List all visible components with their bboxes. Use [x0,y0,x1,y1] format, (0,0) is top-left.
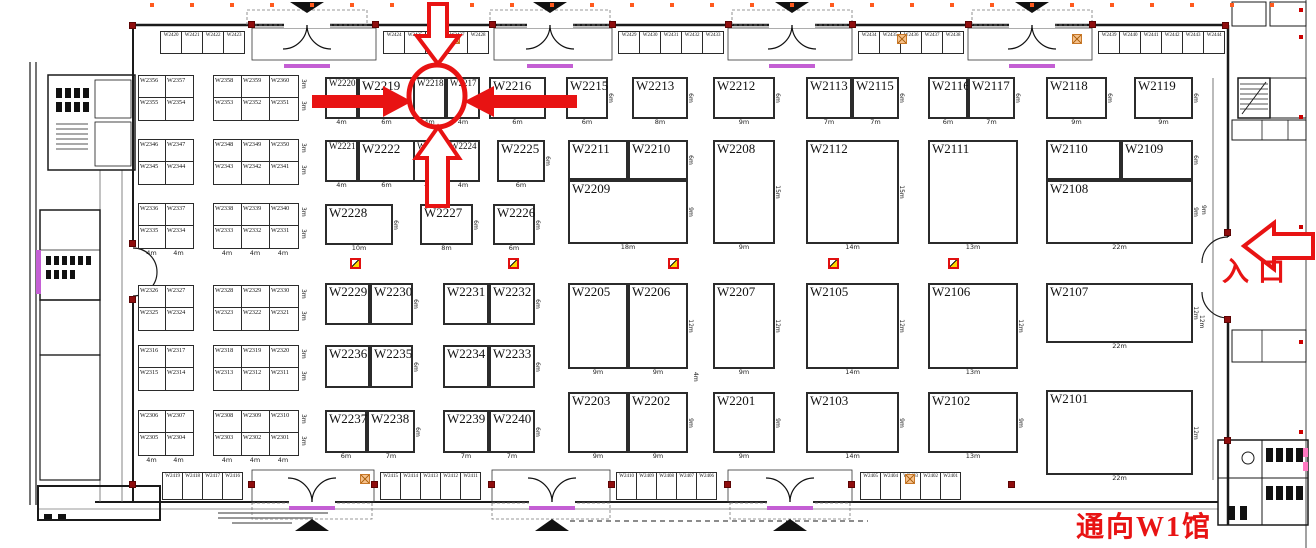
booth-id: W2347 [166,140,193,148]
booth-W2322: W2322 [241,307,271,331]
column-dot-marker [1299,225,1303,229]
booth-id: W2237 [329,412,367,426]
booth-id: W2335 [139,226,166,234]
booth-depth-label: 6m [1192,155,1199,165]
utility-box-marker [450,34,460,44]
booth-id: W2313 [214,368,242,376]
booth-id: W2324 [166,308,193,316]
booth-depth-label: 6m [534,362,541,372]
booth-depth-label: 6m [534,299,541,309]
booth-id: W2319 [242,346,270,354]
booth-id: W2419 [163,473,182,479]
booth-depth-label: 6m [607,93,614,103]
utility-box-marker [905,474,915,484]
booth-id: W2307 [166,411,193,419]
booth-id: W2311 [270,368,298,376]
perimeter-booth-W2412: W2412 [440,472,461,500]
booth-W2316: W2316 [138,345,167,369]
booth-id: W2236 [329,347,367,361]
booth-id: W2327 [166,286,193,294]
booth-width-label: 9m [715,243,773,251]
booth-W2203: W22039m [568,392,628,453]
sprinkler-dot-marker [1230,3,1234,7]
perimeter-booth-W2411: W2411 [460,472,481,500]
booth-W2318: W2318 [213,345,243,369]
booth-width-label: 7m [369,452,413,460]
booth-width-label: 13m [930,243,1016,251]
booth-W2315: W2315 [138,367,167,391]
booth-id: W2339 [242,204,270,212]
sprinkler-dot-marker [230,3,234,7]
perimeter-booth-W2401: W2401 [940,472,961,500]
perimeter-booth-W2409: W2409 [636,472,657,500]
booth-depth-label: 6m [412,299,419,309]
column-dot-marker [1299,430,1303,434]
booth-depth-label: 12m [774,319,781,332]
booth-id: W2107 [1050,285,1088,299]
booth-W2324: W2324 [165,307,194,331]
booth-width-label: 9m [1048,118,1105,126]
booth-width-label: 14m [808,368,897,376]
booth-W2108: W210822m9m [1046,180,1193,244]
perimeter-booth-W2418: W2418 [182,472,203,500]
booth-W2345: W2345 [138,161,167,185]
sprinkler-dot-marker [750,3,754,7]
booth-width-label: 13m [930,368,1016,376]
sprinkler-dot-marker [510,3,514,7]
booth-id: W2317 [166,346,193,354]
booth-id: W2417 [203,473,222,479]
column-dot-marker [1299,35,1303,39]
booth-id: W2102 [932,394,970,408]
booth-W2347: W2347 [165,139,194,163]
booth-width-label: 4m [138,456,165,464]
booth-depth-label: 9m [898,418,905,428]
booth-width-label: 4m [327,118,356,126]
booth-id: W2109 [1125,142,1163,156]
booth-W2208: W22089m15m [713,140,775,244]
booth-id: W2333 [214,226,242,234]
booth-id: W2203 [572,394,610,408]
booth-id: W2208 [717,142,755,156]
booth-id: W2329 [242,286,270,294]
booth-id: W2343 [214,162,242,170]
perimeter-booth-W2431: W2431 [660,31,682,54]
booth-id: W2441 [1141,32,1161,38]
booth-id: W2353 [214,98,242,106]
wall-post-marker [1224,229,1231,236]
booth-id: W2424 [384,32,404,38]
utility-box-marker [360,474,370,484]
booth-id: W2217 [450,79,477,89]
booth-id: W2303 [214,433,242,441]
perimeter-booth-W2423: W2423 [223,31,245,54]
sprinkler-dot-marker [1110,3,1114,7]
sprinkler-dot-marker [1030,3,1034,7]
booth-id: W2316 [139,346,166,354]
booth-id: W2308 [214,411,242,419]
booth-W2222: W22226m6m [358,140,415,182]
perimeter-booth-W2433: W2433 [702,31,724,54]
booth-W2209: W220918m9m [568,180,688,244]
booth-width-label: 4m [448,181,478,189]
booth-id: W2232 [493,285,531,299]
booth-id: W2222 [362,142,400,156]
booth-id: W2314 [166,368,193,376]
booth-id: W2321 [270,308,298,316]
perimeter-booth-W2428: W2428 [467,31,489,54]
sprinkler-dot-marker [830,3,834,7]
booth-id: W2213 [636,79,674,93]
booth-depth-label: 9m [1192,207,1199,217]
booth-id: W2433 [703,32,723,38]
booth-id: W2301 [270,433,298,441]
booth-id: W2228 [329,206,367,220]
booth-W2238: W22387m6m [367,410,415,453]
booth-id: W2116 [932,79,970,93]
booth-width-label: 6m [491,118,544,126]
booth-depth-label: 6m [774,93,781,103]
perimeter-booth-W2415: W2415 [380,472,401,500]
booth-id: W2302 [242,433,270,441]
booth-id: W2410 [617,473,636,479]
wall-post-marker [129,240,136,247]
booth-id: W2432 [682,32,702,38]
booth-id: W2323 [214,308,242,316]
booth-id: W2210 [632,142,670,156]
booth-W2320: W2320 [269,345,299,369]
booth-id: W2306 [139,411,166,419]
sprinkler-dot-marker [190,3,194,7]
sprinkler-dot-marker [150,3,154,7]
booth-W2239: W22397m [443,410,489,453]
booth-id: W2405 [861,473,880,479]
sprinkler-dot-marker [950,3,954,7]
booth-W2216: W22166m [489,77,546,119]
booth-id: W2119 [1138,79,1176,93]
sprinkler-dot-marker [1070,3,1074,7]
booth-width-label: 9m [570,368,626,376]
exhibition-hall-floorplan: W22204mW22196m6mW22184mW22174mW22166mW22… [0,0,1316,548]
booth-id: W2215 [570,79,608,93]
booth-W2119: W21199m6m [1134,77,1193,119]
booth-width-label: 7m [491,452,533,460]
booth-W2230: W22306m [370,283,413,325]
booth-id: W2341 [270,162,298,170]
booth-W2312: W2312 [241,367,271,391]
booth-id: W2357 [166,76,193,84]
wall-post-marker [849,21,856,28]
booth-width-label: 7m [808,118,850,126]
booth-width-label: 4m [165,456,192,464]
perimeter-booth-W2408: W2408 [656,472,677,500]
booth-depth-label: 6m [544,156,551,166]
booth-W2105: W210514m12m [806,283,899,369]
booth-width-label: 9m [1136,118,1191,126]
wall-post-marker [725,21,732,28]
booth-W2307: W2307 [165,410,194,434]
booth-width-label: 9m [715,368,773,376]
booth-W2201: W22019m9m [713,392,775,453]
perimeter-booth-W2405: W2405 [860,472,881,500]
perimeter-booth-W2421: W2421 [181,31,203,54]
perimeter-booth-W2407: W2407 [676,472,697,500]
booth-layer: W22204mW22196m6mW22184mW22174mW22166mW22… [0,0,1316,548]
booth-W2358: W2358 [213,75,243,99]
perimeter-booth-W2406: W2406 [696,472,717,500]
dimension-label: 12m [1198,315,1205,328]
booth-W2240: W22407m6m [489,410,535,453]
booth-W2357: W2357 [165,75,194,99]
booth-width-label: 6m [360,181,413,189]
booth-W2348: W2348 [213,139,243,163]
booth-W2302: W2302 [241,432,271,456]
booth-id: W2440 [1120,32,1140,38]
perimeter-booth-W2402: W2402 [920,472,941,500]
booth-id: W2340 [270,204,298,212]
wall-post-marker [965,21,972,28]
booth-W2220: W22204m [325,77,358,119]
booth-id: W2407 [677,473,696,479]
wall-post-marker [371,481,378,488]
booth-W2327: W2327 [165,285,194,309]
booth-width-label: 6m [499,181,543,189]
booth-W2306: W2306 [138,410,167,434]
booth-depth-label: 6m [1106,93,1113,103]
booth-width-label: 4m [415,118,444,126]
booth-id: W2438 [943,32,963,38]
booth-id: W2351 [270,98,298,106]
booth-id: W2219 [362,79,400,93]
booth-width-label: 14m [808,243,897,251]
booth-W2360: W2360 [269,75,299,99]
booth-id: W2338 [214,204,242,212]
booth-W2359: W2359 [241,75,271,99]
booth-id: W2421 [182,32,202,38]
booth-depth-label: 6m [1014,93,1021,103]
booth-id: W2322 [242,308,270,316]
booth-width-label: 6m [360,118,413,126]
booth-W2301: W2301 [269,432,299,456]
booth-id: W2108 [1050,182,1088,196]
perimeter-booth-W2424: W2424 [383,31,405,54]
booth-depth-label: 12m [687,319,694,332]
booth-width-label: 4m [269,456,297,464]
booth-id: W2231 [447,285,485,299]
entrance-label: 入口 [1222,250,1294,289]
booth-id: W2115 [856,79,894,93]
booth-W2319: W2319 [241,345,271,369]
booth-id: W2337 [166,204,193,212]
booth-depth-label: 3m [300,79,307,89]
booth-W2118: W21189m6m [1046,77,1107,119]
booth-id: W2444 [1204,32,1224,38]
booth-id: W2439 [1099,32,1119,38]
booth-W2328: W2328 [213,285,243,309]
booth-depth-label: 6m [534,220,541,230]
sprinkler-dot-marker [1270,3,1274,7]
booth-id: W2320 [270,346,298,354]
booth-id: W2309 [242,411,270,419]
booth-width-label: 4m [213,456,241,464]
booth-W2305: W2305 [138,432,167,456]
booth-id: W2416 [223,473,242,479]
column-dot-marker [1299,8,1303,12]
booth-depth-label: 3m [300,165,307,175]
wall-post-marker [1089,21,1096,28]
booth-id: W2240 [493,412,531,426]
booth-id: W2350 [270,140,298,148]
booth-id: W2220 [329,79,356,89]
booth-id: W2238 [371,412,409,426]
booth-depth-label: 12m [1017,319,1024,332]
booth-id: W2334 [166,226,193,234]
booth-id: W2304 [166,433,193,441]
sprinkler-dot-marker [550,3,554,7]
sprinkler-dot-marker [310,3,314,7]
booth-W2321: W2321 [269,307,299,331]
booth-W2109: W21096m [1121,140,1193,180]
booth-id: W2428 [468,32,488,38]
perimeter-booth-W2441: W2441 [1140,31,1162,54]
booth-id: W2345 [139,162,166,170]
wall-post-marker [848,481,855,488]
booth-W2326: W2326 [138,285,167,309]
booth-W2234: W2234 [443,345,489,388]
booth-W2314: W2314 [165,367,194,391]
booth-id: W2218 [417,79,444,89]
booth-width-label: 6m [930,118,966,126]
sprinkler-dot-marker [670,3,674,7]
booth-width-label: 4m [415,181,444,189]
booth-depth-label: 9m [687,207,694,217]
booth-id: W2409 [637,473,656,479]
sprinkler-dot-marker [390,3,394,7]
booth-depth-label: 3m [300,349,307,359]
column-dot-marker [1299,115,1303,119]
to-w1-hall-label: 通向W1馆 [1076,505,1212,545]
booth-id: W2312 [242,368,270,376]
booth-width-label: 8m [422,244,471,252]
sprinkler-dot-marker [870,3,874,7]
booth-W2333: W2333 [213,225,243,249]
wall-post-marker [248,21,255,28]
booth-depth-label: 9m [774,418,781,428]
booth-W2303: W2303 [213,432,243,456]
booth-id: W2356 [139,76,166,84]
booth-id: W2233 [493,347,531,361]
perimeter-booth-W2410: W2410 [616,472,637,500]
booth-id: W2325 [139,308,166,316]
booth-id: W2202 [632,394,670,408]
booth-W2219: W22196m6m [358,77,415,119]
booth-id: W2423 [224,32,244,38]
booth-W2237: W22376m [325,410,367,453]
booth-width-label: 10m [327,244,391,252]
dimension-label: 4m [692,372,699,382]
booth-W2329: W2329 [241,285,271,309]
booth-width-label: 22m [1048,342,1191,350]
booth-W2349: W2349 [241,139,271,163]
booth-id: W2113 [810,79,848,93]
booth-id: W2331 [270,226,298,234]
booth-id: W2223 [417,142,444,152]
booth-W2340: W2340 [269,203,299,227]
booth-W2106: W210613m12m [928,283,1018,369]
booth-depth-label: 12m [1192,426,1199,439]
booth-id: W2408 [657,473,676,479]
fire-equipment-marker [948,258,959,269]
dimension-label: 9m [1200,205,1207,215]
booth-id: W2442 [1162,32,1182,38]
perimeter-booth-W2413: W2413 [420,472,441,500]
booth-id: W2406 [697,473,716,479]
wall-post-marker [372,21,379,28]
booth-id: W2336 [139,204,166,212]
booth-width-label: 8m [634,118,686,126]
booth-width-label: 9m [630,368,686,376]
booth-id: W2207 [717,285,755,299]
booth-depth-label: 6m [534,427,541,437]
perimeter-booth-W2416: W2416 [222,472,243,500]
perimeter-booth-W2429: W2429 [618,31,640,54]
booth-W2334: W2334 [165,225,194,249]
booth-depth-label: 3m [300,101,307,111]
booth-W2117: W21177m6m [968,77,1015,119]
booth-depth-label: 9m [687,418,694,428]
booth-id: W2230 [374,285,412,299]
booth-id: W2225 [501,142,539,156]
booth-width-label: 22m [1048,474,1191,482]
booth-id: W2412 [441,473,460,479]
booth-W2311: W2311 [269,367,299,391]
booth-W2304: W2304 [165,432,194,456]
booth-W2116: W21166m [928,77,968,119]
sprinkler-dot-marker [350,3,354,7]
booth-W2330: W2330 [269,285,299,309]
sprinkler-dot-marker [630,3,634,7]
booth-depth-label: 3m [300,207,307,217]
perimeter-booth-W2430: W2430 [639,31,661,54]
booth-W2338: W2338 [213,203,243,227]
booth-W2212: W22129m6m [713,77,775,119]
booth-W2213: W22138m6m [632,77,688,119]
booth-depth-label: 3m [300,436,307,446]
booth-id: W2224 [450,142,477,152]
perimeter-booth-W2434: W2434 [858,31,880,54]
booth-id: W2344 [166,162,193,170]
booth-W2110: W2110 [1046,140,1121,180]
booth-W2341: W2341 [269,161,299,185]
booth-depth-label: 6m [1192,93,1199,103]
booth-W2356: W2356 [138,75,167,99]
wall-post-marker [724,481,731,488]
perimeter-booth-W2440: W2440 [1119,31,1141,54]
booth-width-label: 4m [241,249,269,257]
booth-W2325: W2325 [138,307,167,331]
perimeter-booth-W2417: W2417 [202,472,223,500]
booth-id: W2358 [214,76,242,84]
booth-id: W2443 [1183,32,1203,38]
booth-W2313: W2313 [213,367,243,391]
booth-id: W2414 [401,473,420,479]
perimeter-booth-W2442: W2442 [1161,31,1183,54]
booth-id: W2354 [166,98,193,106]
booth-depth-label: 3m [300,289,307,299]
booth-width-label: 4m [138,249,165,257]
booth-W2342: W2342 [241,161,271,185]
booth-W2332: W2332 [241,225,271,249]
